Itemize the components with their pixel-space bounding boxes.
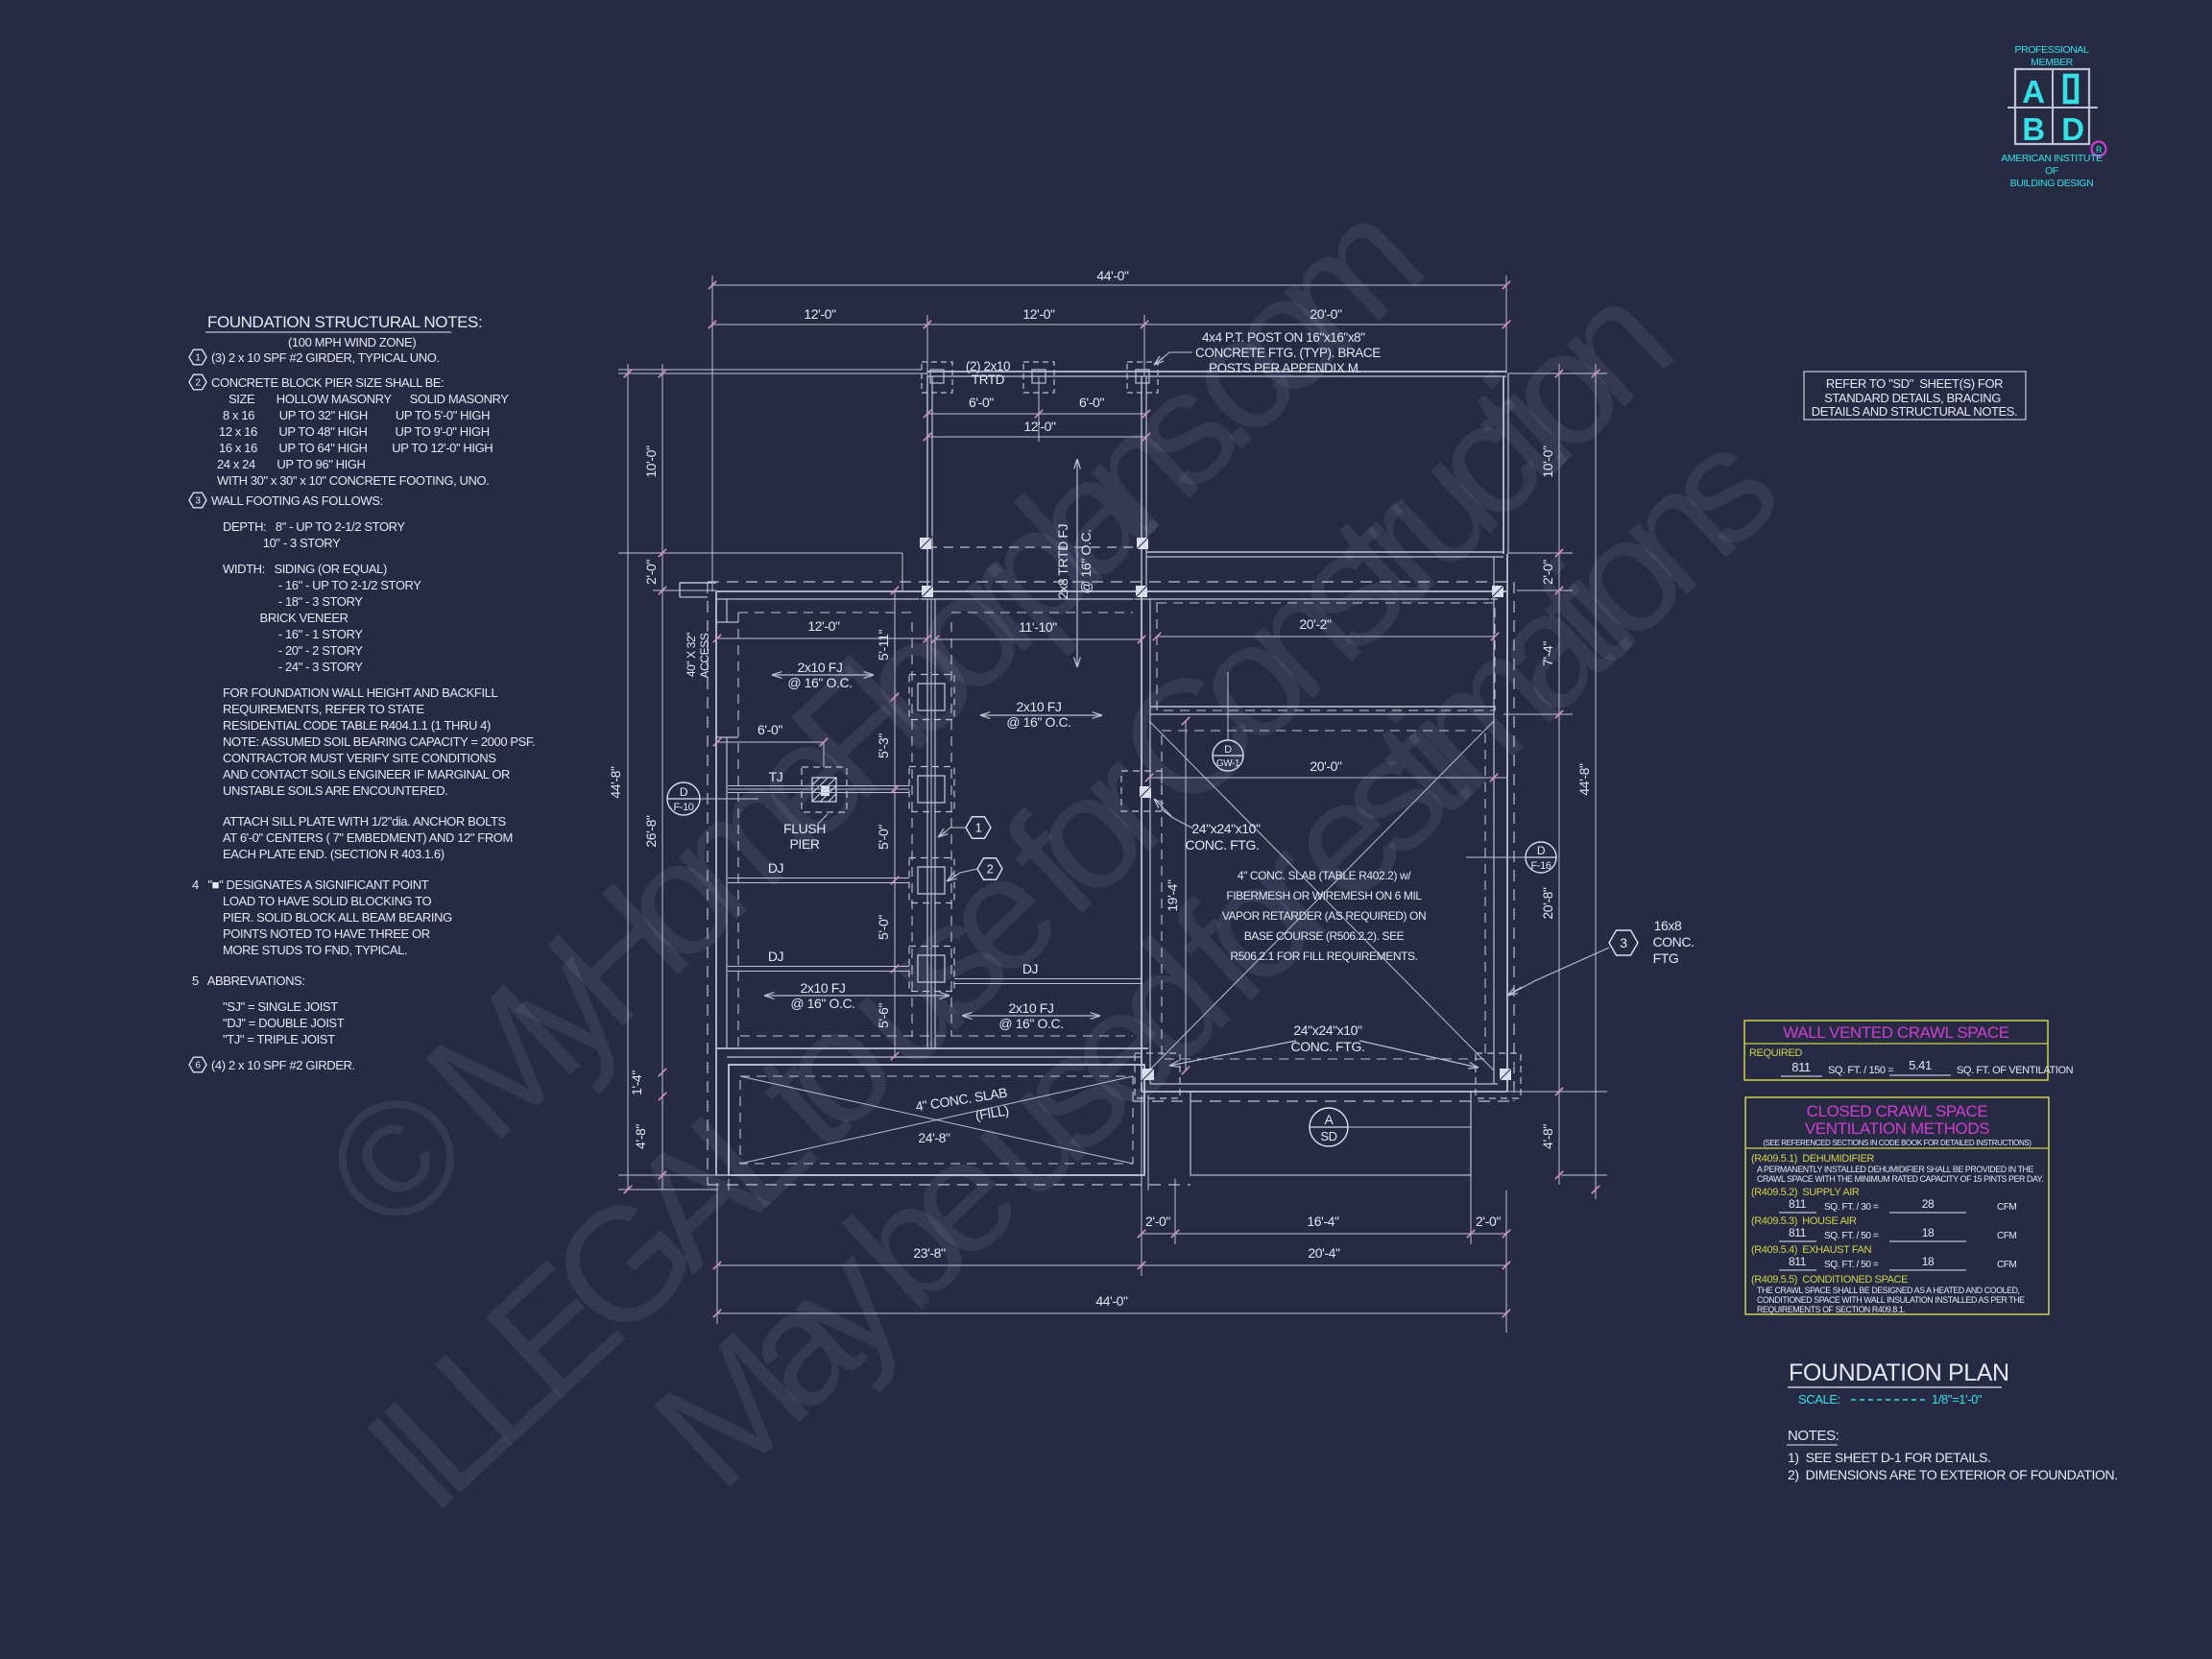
svg-text:BASE COURSE (R506.2.2). SEE: BASE COURSE (R506.2.2). SEE — [1244, 929, 1405, 943]
svg-text:5.41: 5.41 — [1909, 1058, 1932, 1072]
svg-text:UNSTABLE SOILS ARE ENCOUNTERED: UNSTABLE SOILS ARE ENCOUNTERED. — [223, 783, 447, 798]
svg-text:WALL FOOTING AS FOLLOWS:: WALL FOOTING AS FOLLOWS: — [211, 493, 383, 508]
svg-text:- 18" - 3 STORY: - 18" - 3 STORY — [223, 594, 363, 609]
svg-text:4" CONC. SLAB (TABLE R402.2) w: 4" CONC. SLAB (TABLE R402.2) w/ — [1238, 869, 1411, 882]
svg-text:4'-8": 4'-8" — [633, 1124, 648, 1149]
svg-text:REQUIRED: REQUIRED — [1749, 1047, 1802, 1059]
svg-text:28: 28 — [1922, 1197, 1935, 1211]
svg-text:POINTS NOTED TO HAVE THREE OR: POINTS NOTED TO HAVE THREE OR — [223, 926, 430, 941]
svg-text:PROFESSIONAL: PROFESSIONAL — [2015, 44, 2089, 56]
svg-text:WITH 30" x 30" x 10" CONCRETE: WITH 30" x 30" x 10" CONCRETE FOOTING, U… — [217, 473, 489, 488]
svg-text:MEMBER: MEMBER — [2031, 57, 2074, 68]
svg-text:CRAWL SPACE WITH THE MINIMUM R: CRAWL SPACE WITH THE MINIMUM RATED CAPAC… — [1757, 1174, 2043, 1184]
svg-text:12'-0": 12'-0" — [807, 618, 840, 634]
svg-text:FOR FOUNDATION WALL HEIGHT AND: FOR FOUNDATION WALL HEIGHT AND BACKFILL — [223, 685, 498, 700]
svg-text:2x8 TRTD FJ: 2x8 TRTD FJ — [1055, 524, 1070, 599]
svg-text:REQUIREMENTS OF SECTION R409.8: REQUIREMENTS OF SECTION R409.8.1. — [1757, 1305, 1905, 1314]
svg-text:2'-0": 2'-0" — [1540, 560, 1555, 585]
svg-text:24"x24"x10": 24"x24"x10" — [1293, 1022, 1362, 1038]
svg-text:40" X 32": 40" X 32" — [685, 633, 698, 677]
svg-text:44'-0": 44'-0" — [1095, 1293, 1128, 1309]
svg-text:CONTRACTOR MUST VERIFY SITE CO: CONTRACTOR MUST VERIFY SITE CONDITIONS — [223, 751, 496, 765]
svg-text:FOUNDATION PLAN: FOUNDATION PLAN — [1789, 1359, 2009, 1386]
svg-text:FIBERMESH OR WIREMESH ON 6 MIL: FIBERMESH OR WIREMESH ON 6 MIL — [1226, 889, 1422, 902]
svg-text:DJ: DJ — [768, 949, 783, 964]
svg-text:44'-8": 44'-8" — [1576, 763, 1592, 796]
svg-text:1: 1 — [975, 821, 982, 835]
svg-text:- 20" - 2 STORY: - 20" - 2 STORY — [223, 643, 363, 658]
svg-text:THE CRAWL SPACE SHALL BE DESIG: THE CRAWL SPACE SHALL BE DESIGNED AS A H… — [1757, 1286, 2020, 1295]
svg-text:2: 2 — [987, 862, 994, 877]
svg-text:PIER: PIER — [789, 836, 819, 852]
svg-text:- 16" - UP TO 2-1/2 STORY: - 16" - UP TO 2-1/2 STORY — [223, 578, 421, 592]
svg-text:10'-0": 10'-0" — [1540, 445, 1555, 478]
svg-text:"DJ" = DOUBLE JOIST: "DJ" = DOUBLE JOIST — [223, 1016, 345, 1030]
svg-text:DJ: DJ — [1022, 961, 1038, 976]
svg-text:A PERMANENTLY INSTALLED DEHUMI: A PERMANENTLY INSTALLED DEHUMIDIFIER SHA… — [1757, 1165, 2033, 1174]
svg-text:CONC. FTG.: CONC. FTG. — [1186, 837, 1260, 853]
svg-text:20'-4": 20'-4" — [1308, 1245, 1340, 1261]
svg-text:CFM: CFM — [1997, 1231, 2017, 1241]
svg-text:"TJ" = TRIPLE JOIST: "TJ" = TRIPLE JOIST — [223, 1032, 335, 1046]
svg-text:(100 MPH WIND ZONE): (100 MPH WIND ZONE) — [288, 335, 416, 349]
svg-text:EACH PLATE END. (SECTION R 403: EACH PLATE END. (SECTION R 403.1.6) — [223, 847, 445, 861]
svg-text:CONDITIONED SPACE WITH WALL IN: CONDITIONED SPACE WITH WALL INSULATION I… — [1757, 1295, 2025, 1305]
svg-text:@ 16" O.C.: @ 16" O.C. — [1006, 714, 1070, 730]
svg-text:CLOSED CRAWL SPACE: CLOSED CRAWL SPACE — [1807, 1102, 1988, 1120]
svg-text:DETAILS AND STRUCTURAL NOTES.: DETAILS AND STRUCTURAL NOTES. — [1812, 404, 2018, 419]
svg-text:VENTILATION METHODS: VENTILATION METHODS — [1805, 1119, 1989, 1138]
svg-text:WALL VENTED CRAWL SPACE: WALL VENTED CRAWL SPACE — [1783, 1023, 2009, 1042]
svg-text:SQ. FT. OF VENTILATION: SQ. FT. OF VENTILATION — [1957, 1065, 2074, 1076]
svg-text:7'-4": 7'-4" — [1540, 641, 1555, 666]
svg-text:5'-6": 5'-6" — [876, 1003, 891, 1028]
svg-text:R506.2.1 FOR FILL REQUIREMENTS: R506.2.1 FOR FILL REQUIREMENTS. — [1230, 950, 1417, 963]
svg-text:2'-0": 2'-0" — [643, 560, 659, 585]
svg-text:5'-11": 5'-11" — [876, 629, 891, 661]
svg-text:DEPTH: 8" - UP TO 2-1/2 STOR: DEPTH: 8" - UP TO 2-1/2 STORY — [223, 519, 405, 534]
svg-text:SQ. FT. / 150 =: SQ. FT. / 150 = — [1828, 1065, 1893, 1076]
svg-text:(4) 2 x 10 SPF #2 GIRDER.: (4) 2 x 10 SPF #2 GIRDER. — [211, 1058, 355, 1072]
svg-text:1: 1 — [195, 353, 201, 364]
svg-text:12'-0": 12'-0" — [1023, 419, 1056, 434]
svg-text:23'-8": 23'-8" — [913, 1245, 946, 1261]
svg-text:24"x24"x10": 24"x24"x10" — [1191, 821, 1261, 836]
svg-text:5'-0": 5'-0" — [876, 825, 891, 850]
svg-text:MORE STUDS TO FND, TYPICAL.: MORE STUDS TO FND, TYPICAL. — [223, 943, 407, 957]
svg-text:A: A — [1325, 1112, 1334, 1127]
svg-text:2x10 FJ: 2x10 FJ — [1009, 1000, 1054, 1016]
svg-text:F-16: F-16 — [1530, 860, 1551, 872]
svg-text:20'-0": 20'-0" — [1310, 758, 1342, 774]
svg-text:(3) 2 x 10 SPF #2 GIRDER, TYPI: (3) 2 x 10 SPF #2 GIRDER, TYPICAL UNO. — [211, 350, 440, 365]
svg-text:CONCRETE BLOCK PIER SIZE SHALL: CONCRETE BLOCK PIER SIZE SHALL BE: — [211, 375, 444, 390]
svg-text:2'-0": 2'-0" — [1476, 1214, 1501, 1229]
svg-text:SCALE:: SCALE: — [1798, 1392, 1840, 1407]
svg-text:REQUIREMENTS, REFER TO STATE: REQUIREMENTS, REFER TO STATE — [223, 702, 424, 716]
svg-text:5 ABBREVIATIONS:: 5 ABBREVIATIONS: — [192, 974, 305, 988]
svg-text:AMERICAN INSTITUTE: AMERICAN INSTITUTE — [2001, 153, 2103, 164]
svg-text:26'-8": 26'-8" — [643, 815, 659, 848]
svg-text:10'-0": 10'-0" — [643, 445, 659, 478]
svg-text:GW-1: GW-1 — [1216, 758, 1240, 769]
svg-text:OF: OF — [2045, 165, 2058, 177]
svg-text:2'-0": 2'-0" — [1145, 1214, 1170, 1229]
svg-text:AT 6'-0" CENTERS ( 7" EMBEDMEN: AT 6'-0" CENTERS ( 7" EMBEDMENT) AND 12"… — [223, 830, 513, 845]
svg-text:CONC. FTG.: CONC. FTG. — [1291, 1039, 1365, 1054]
svg-text:5'-0": 5'-0" — [876, 915, 891, 940]
svg-text:SD: SD — [1320, 1129, 1336, 1143]
svg-text:4x4 P.T. POST ON 16"x16"x8": 4x4 P.T. POST ON 16"x16"x8" — [1202, 330, 1365, 345]
svg-text:B: B — [2022, 111, 2044, 147]
svg-text:@ 16" O.C.: @ 16" O.C. — [1078, 529, 1094, 593]
svg-text:A: A — [2022, 74, 2044, 109]
svg-text:24'-8": 24'-8" — [918, 1130, 950, 1145]
svg-text:18: 18 — [1922, 1226, 1935, 1239]
svg-text:8 x 16 UP TO 32" HIGH: 8 x 16 UP TO 32" HIGH UP TO 5'-0" HIGH — [223, 408, 490, 422]
svg-text:- 24" - 3 STORY: - 24" - 3 STORY — [223, 660, 363, 674]
svg-text:11'-10": 11'-10" — [1019, 619, 1057, 635]
svg-text:6'-0": 6'-0" — [1079, 395, 1104, 410]
svg-text:4 "■" DESIGNATES A SIGNIFICA: 4 "■" DESIGNATES A SIGNIFICANT POINT — [192, 878, 429, 892]
svg-text:F-10: F-10 — [673, 802, 693, 813]
svg-text:1/8"=1'-0": 1/8"=1'-0" — [1932, 1392, 1983, 1407]
svg-text:2x10 FJ: 2x10 FJ — [801, 980, 846, 996]
svg-text:811: 811 — [1789, 1197, 1807, 1211]
svg-text:CFM: CFM — [1997, 1260, 2017, 1270]
svg-text:NOTES:: NOTES: — [1788, 1428, 1839, 1444]
svg-text:WIDTH: SIDING (OR EQUAL): WIDTH: SIDING (OR EQUAL) — [223, 562, 387, 576]
svg-text:3: 3 — [195, 496, 201, 507]
svg-text:VAPOR RETARDER (AS REQUIRED) O: VAPOR RETARDER (AS REQUIRED) ON — [1222, 909, 1427, 923]
svg-text:5'-3": 5'-3" — [876, 733, 891, 758]
svg-text:19'-4": 19'-4" — [1165, 879, 1180, 912]
svg-text:20'-8": 20'-8" — [1540, 887, 1555, 920]
svg-text:(R409.5.5) CONDITIONED SPACE: (R409.5.5) CONDITIONED SPACE — [1751, 1274, 1908, 1286]
svg-text:STANDARD DETAILS, BRACING: STANDARD DETAILS, BRACING — [1824, 391, 2001, 405]
svg-text:1'-4": 1'-4" — [629, 1070, 644, 1095]
svg-text:TRTD: TRTD — [972, 373, 1005, 387]
svg-text:AND CONTACT SOILS ENGINEER IF: AND CONTACT SOILS ENGINEER IF MARGINAL O… — [223, 767, 510, 781]
svg-text:16x8: 16x8 — [1654, 918, 1682, 933]
svg-text:4'-8": 4'-8" — [1540, 1124, 1555, 1149]
svg-text:SIZE HOLLOW MASONRY: SIZE HOLLOW MASONRY SOLID MASONRY — [228, 392, 509, 406]
svg-text:CFM: CFM — [1997, 1202, 2017, 1213]
svg-text:FOUNDATION STRUCTURAL NOTES:: FOUNDATION STRUCTURAL NOTES: — [207, 313, 482, 331]
svg-text:3: 3 — [1620, 935, 1627, 950]
svg-text:44'-8": 44'-8" — [608, 766, 623, 799]
svg-text:REFER TO "SD" SHEET(S) FOR: REFER TO "SD" SHEET(S) FOR — [1826, 376, 2003, 391]
svg-text:16'-4": 16'-4" — [1307, 1214, 1339, 1229]
svg-text:FTG: FTG — [1653, 950, 1679, 966]
svg-text:6: 6 — [195, 1061, 201, 1071]
svg-text:10" - 3 STORY: 10" - 3 STORY — [223, 536, 341, 550]
svg-text:2x10 FJ: 2x10 FJ — [798, 660, 843, 675]
svg-text:6'-0": 6'-0" — [757, 722, 782, 737]
svg-text:(R409.5.1) DEHUMIDIFIER: (R409.5.1) DEHUMIDIFIER — [1751, 1153, 1874, 1165]
svg-text:PIER. SOLID BLOCK ALL BEAM BEA: PIER. SOLID BLOCK ALL BEAM BEARING — [223, 910, 452, 925]
svg-text:6'-0": 6'-0" — [969, 395, 994, 410]
svg-text:D: D — [680, 785, 688, 799]
svg-text:44'-0": 44'-0" — [1096, 268, 1129, 283]
svg-text:CONC.: CONC. — [1652, 934, 1694, 950]
svg-text:811: 811 — [1789, 1255, 1807, 1268]
svg-text:D: D — [2061, 111, 2083, 147]
svg-text:@ 16" O.C.: @ 16" O.C. — [998, 1016, 1063, 1031]
svg-text:POSTS PER APPENDIX M.: POSTS PER APPENDIX M. — [1209, 361, 1361, 375]
svg-text:2x10 FJ: 2x10 FJ — [1017, 699, 1062, 714]
svg-text:D: D — [1537, 844, 1546, 857]
svg-text:NOTE: ASSUMED SOIL BEARING CAP: NOTE: ASSUMED SOIL BEARING CAPACITY = 20… — [223, 734, 535, 749]
svg-text:SQ. FT. / 50 =: SQ. FT. / 50 = — [1824, 1231, 1879, 1241]
svg-text:811: 811 — [1789, 1226, 1807, 1239]
svg-text:SQ. FT. / 30 =: SQ. FT. / 30 = — [1824, 1202, 1879, 1213]
svg-text:24 x 24 UP TO 96" HIGH: 24 x 24 UP TO 96" HIGH — [217, 457, 366, 471]
svg-text:811: 811 — [1791, 1060, 1811, 1074]
svg-text:BUILDING DESIGN: BUILDING DESIGN — [2010, 178, 2094, 189]
svg-text:12 x 16 UP TO 48" HIGH: 12 x 16 UP TO 48" HIGH UP TO 9'-0" HIGH — [219, 424, 490, 439]
svg-text:LOAD TO HAVE SOLID BLOCKING TO: LOAD TO HAVE SOLID BLOCKING TO — [223, 894, 432, 908]
svg-text:D: D — [1224, 744, 1232, 756]
svg-text:12'-0": 12'-0" — [804, 306, 836, 322]
svg-text:ATTACH SILL PLATE WITH 1/2"dia: ATTACH SILL PLATE WITH 1/2"dia. ANCHOR B… — [223, 814, 506, 829]
svg-text:12'-0": 12'-0" — [1022, 306, 1055, 322]
svg-text:BRICK VENEER: BRICK VENEER — [223, 611, 349, 625]
svg-text:(SEE REFERENCED SECTIONS IN CO: (SEE REFERENCED SECTIONS IN CODE BOOK FO… — [1763, 1139, 2032, 1147]
svg-text:(2) 2x10: (2) 2x10 — [966, 359, 1010, 373]
svg-text:20'-2": 20'-2" — [1299, 616, 1332, 632]
svg-text:ACCESS: ACCESS — [698, 633, 711, 678]
svg-text:CONCRETE FTG. (TYP). BRACE: CONCRETE FTG. (TYP). BRACE — [1195, 346, 1381, 360]
svg-text:1) SEE SHEET D-1 FOR DETAILS.: 1) SEE SHEET D-1 FOR DETAILS. — [1788, 1450, 1991, 1465]
svg-text:@ 16" O.C.: @ 16" O.C. — [790, 996, 854, 1011]
svg-text:"SJ" = SINGLE JOIST: "SJ" = SINGLE JOIST — [223, 999, 338, 1014]
svg-text:(R409.5.4) EXHAUST FAN: (R409.5.4) EXHAUST FAN — [1751, 1244, 1872, 1256]
svg-text:RESIDENTIAL CODE TABLE R404.1.: RESIDENTIAL CODE TABLE R404.1.1 (1 THRU … — [223, 718, 491, 733]
svg-text:@ 16" O.C.: @ 16" O.C. — [787, 675, 852, 690]
svg-text:2: 2 — [195, 378, 201, 389]
svg-text:20'-0": 20'-0" — [1310, 306, 1342, 322]
svg-text:2) DIMENSIONS ARE TO EXTERIOR: 2) DIMENSIONS ARE TO EXTERIOR OF FOUNDAT… — [1788, 1467, 2118, 1482]
svg-text:TJ: TJ — [769, 769, 783, 784]
svg-text:- 16" - 1 STORY: - 16" - 1 STORY — [223, 627, 363, 641]
svg-text:16 x 16 UP TO 64" HIGH: 16 x 16 UP TO 64" HIGH UP TO 12'-0" HIGH — [219, 441, 493, 455]
svg-text:SQ. FT. / 50 =: SQ. FT. / 50 = — [1824, 1260, 1879, 1270]
svg-text:DJ: DJ — [768, 860, 783, 876]
svg-text:18: 18 — [1922, 1255, 1935, 1268]
